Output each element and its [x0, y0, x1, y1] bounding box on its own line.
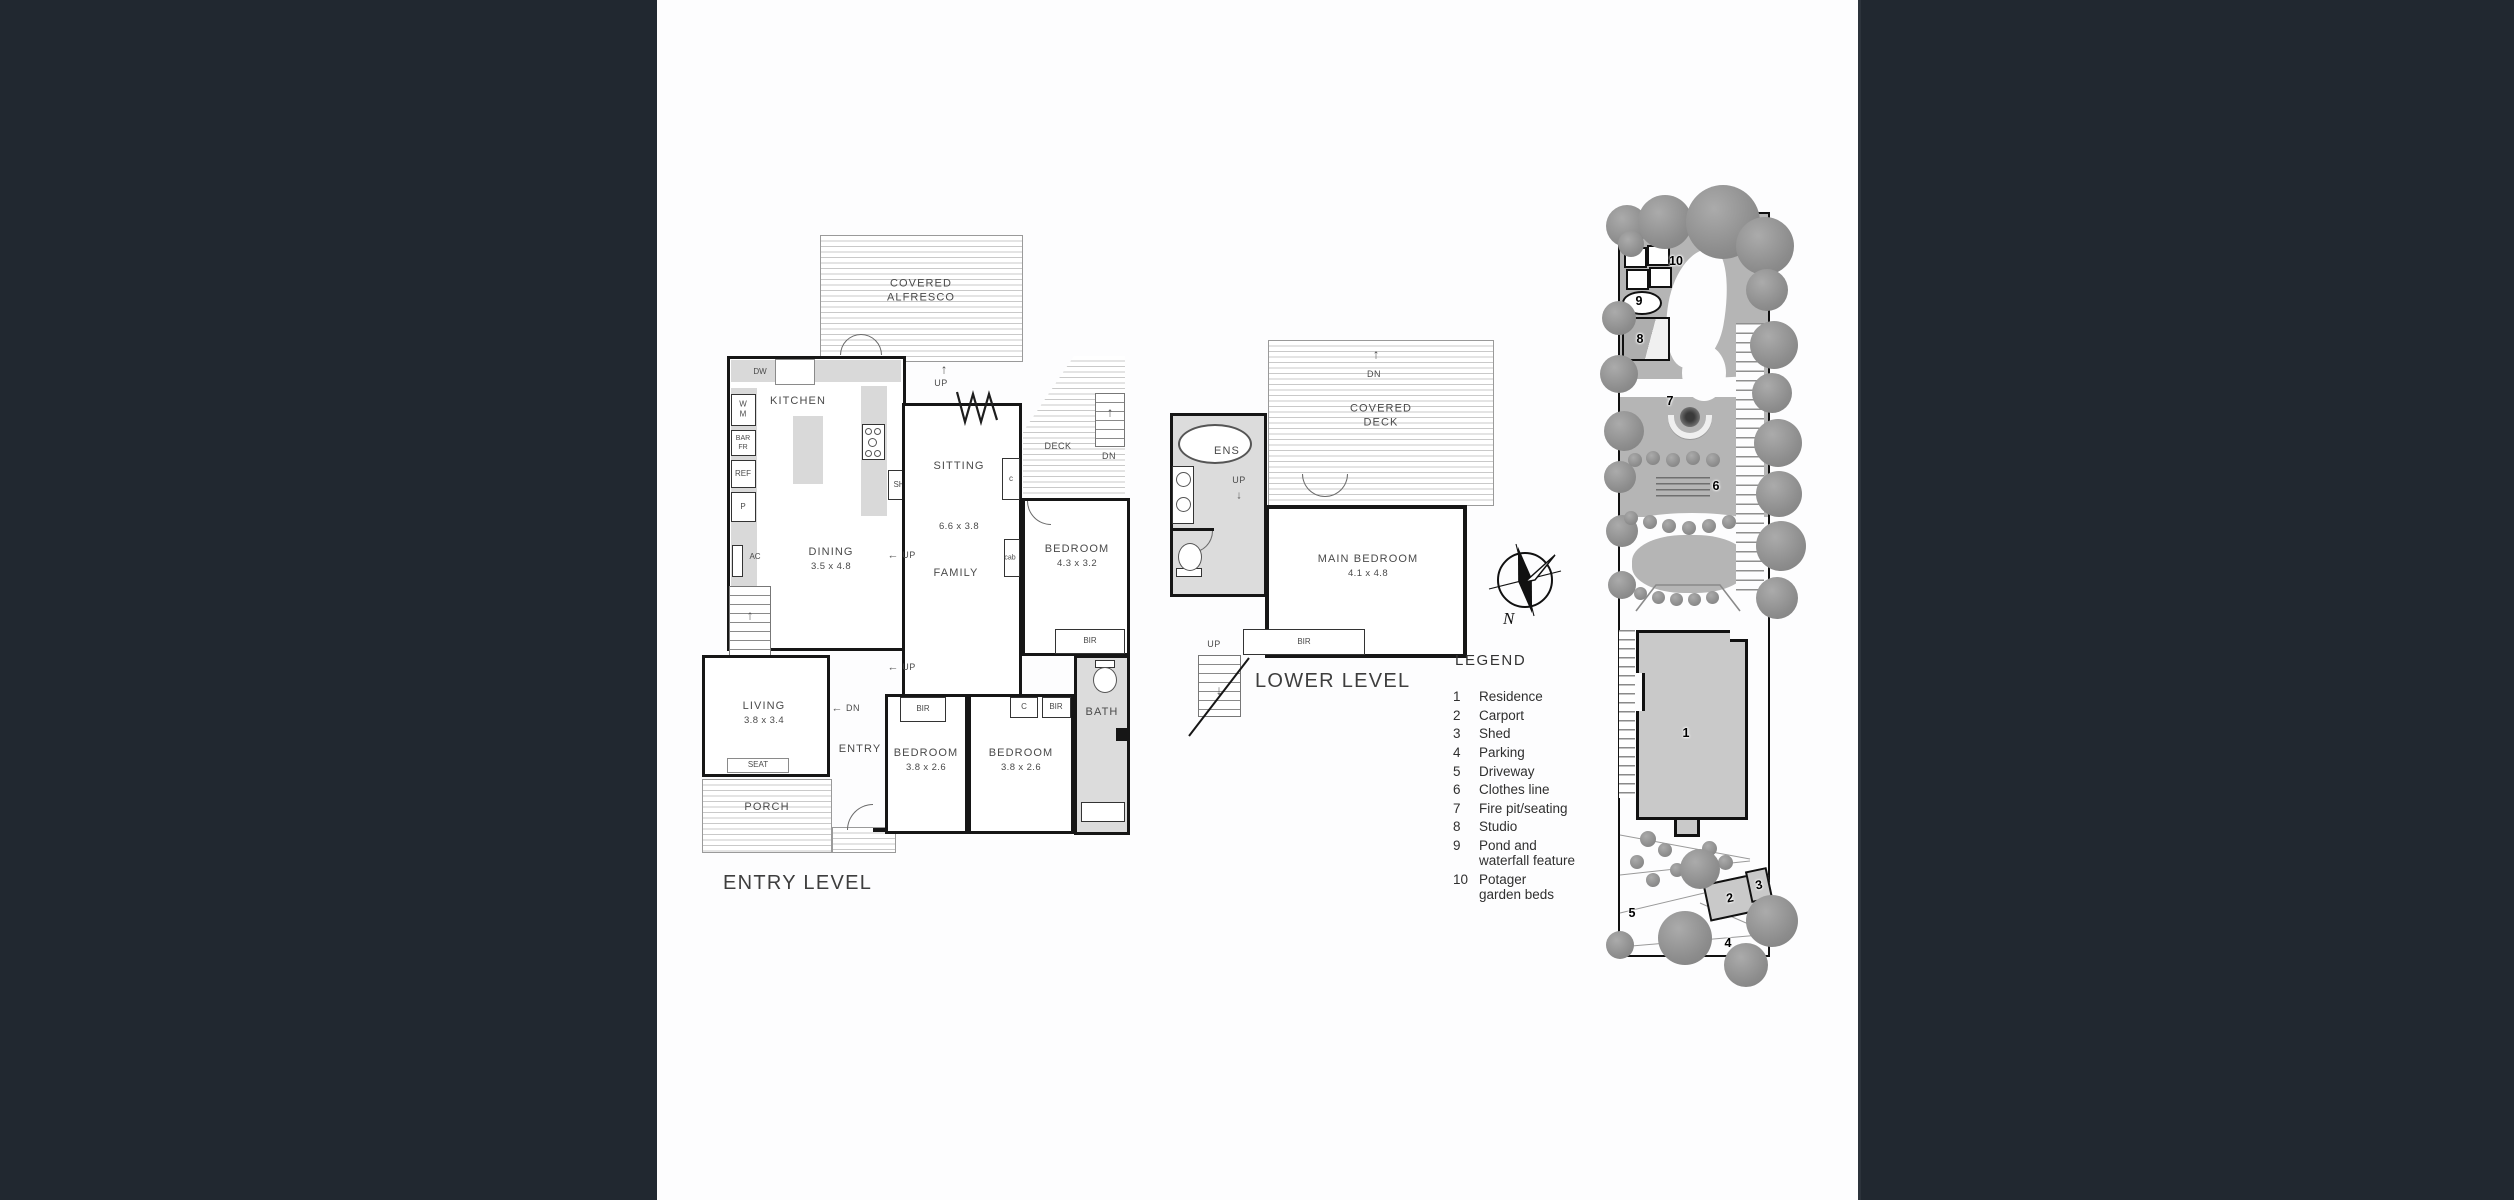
- residence-building: [1636, 630, 1748, 820]
- shrub-icon: [1634, 587, 1647, 600]
- shrub-icon: [1630, 855, 1644, 869]
- seat-label: SEAT: [748, 760, 768, 770]
- main-bedroom-label: MAIN BEDROOM: [1318, 552, 1419, 566]
- lower-up-label: UP: [1207, 639, 1221, 651]
- shrub-icon: [1643, 515, 1657, 529]
- toilet-icon: [1093, 667, 1117, 693]
- legend-num: 2: [1453, 708, 1479, 723]
- tree-icon: [1618, 231, 1644, 257]
- family-label: FAMILY: [934, 566, 979, 580]
- compass-icon: N: [1483, 538, 1567, 634]
- entry-level-title: ENTRY LEVEL: [723, 872, 872, 895]
- deck-dn-label: DN: [1367, 369, 1381, 381]
- front-door-arc: [847, 804, 873, 830]
- pantry-label: P: [740, 502, 745, 512]
- site-marker-2: 2: [1725, 890, 1735, 905]
- lower-level-title: LOWER LEVEL: [1255, 670, 1410, 693]
- bedroom-right-label: BEDROOM: [1045, 542, 1110, 556]
- deck-label: DECK: [1044, 441, 1071, 453]
- main-bedroom-dim: 4.1 x 4.8: [1348, 568, 1388, 580]
- bedroom-a-label: BEDROOM: [894, 746, 959, 760]
- shrub-icon: [1640, 831, 1656, 847]
- fireplace-zigzag-icon: [955, 390, 999, 424]
- legend-num: 4: [1453, 745, 1479, 760]
- kitchen-island: [793, 416, 823, 484]
- porch-label: PORCH: [744, 800, 789, 814]
- ac-label: AC: [749, 552, 760, 562]
- cabinet-label: cab: [1004, 553, 1015, 562]
- bir-label: BIR: [1297, 637, 1310, 647]
- floorplan-sheet: COVERED ALFRESCO ↑ UP DECK ↑ DN DW W M B…: [657, 0, 1861, 1200]
- washing-machine-label: W M: [739, 400, 747, 421]
- stove-burner-icon: [874, 450, 881, 457]
- tree-icon: [1658, 911, 1712, 965]
- bathtub: [1081, 802, 1125, 822]
- stove-burner-icon: [868, 438, 877, 447]
- up-arrow-icon: ↑: [1107, 406, 1114, 419]
- bedroom-a-dim: 3.8 x 2.6: [906, 762, 946, 774]
- shrub-icon: [1658, 843, 1672, 857]
- tree-icon: [1602, 301, 1636, 335]
- shrub-icon: [1706, 591, 1719, 604]
- site-marker-6: 6: [1713, 479, 1720, 493]
- shower-fitting: [1116, 728, 1128, 741]
- fire-pit: [1680, 407, 1700, 427]
- bar-fridge-label: BAR FR: [736, 434, 750, 452]
- compass-n-label: N: [1502, 609, 1516, 628]
- deck-stairs: [1095, 393, 1125, 447]
- tree-icon: [1746, 269, 1788, 311]
- up-arrow-icon: ↑: [1373, 348, 1380, 361]
- porch-deck: [702, 779, 832, 853]
- alfresco-up-label: UP: [934, 378, 948, 390]
- shrub-icon: [1646, 873, 1660, 887]
- dishwasher: [775, 359, 815, 385]
- shrub-icon: [1670, 593, 1683, 606]
- stair-diagonal-line: [1187, 654, 1251, 738]
- deck-dn-label: DN: [1102, 451, 1116, 463]
- covered-deck-label: COVERED DECK: [1350, 402, 1412, 431]
- closet-small-label: c: [1009, 474, 1013, 484]
- left-arrow-icon: ←: [888, 663, 899, 674]
- tree-icon: [1606, 931, 1634, 959]
- shrub-icon: [1702, 519, 1716, 533]
- legend-num: 5: [1453, 764, 1479, 779]
- residence-notch: [1730, 627, 1748, 642]
- up-arrow-icon: ↑: [941, 363, 948, 376]
- ensuite-label: ENS: [1214, 444, 1240, 458]
- up-arrow-icon: ↑: [747, 609, 754, 622]
- step-up-label: UP: [902, 662, 916, 674]
- garden-bed: [1626, 269, 1649, 290]
- vanity-basin-icon: [1176, 497, 1191, 512]
- tree-icon: [1746, 895, 1798, 947]
- shrub-icon: [1682, 521, 1696, 535]
- tree-icon: [1752, 373, 1792, 413]
- site-marker-5: 5: [1629, 906, 1636, 920]
- closet-label: C: [1021, 702, 1027, 712]
- left-arrow-icon: ←: [888, 551, 899, 562]
- legend-num: 8: [1453, 819, 1479, 834]
- stove-burner-icon: [865, 450, 872, 457]
- site-marker-1: 1: [1683, 726, 1690, 740]
- side-stairs: [1619, 630, 1635, 798]
- bir-label: BIR: [916, 704, 929, 714]
- shrub-icon: [1718, 855, 1733, 870]
- dishwasher-label: DW: [753, 367, 766, 377]
- shrub-icon: [1662, 519, 1676, 533]
- site-plan: 10 9 8 7 6 1 2: [1610, 205, 1785, 1005]
- shrub-icon: [1624, 511, 1638, 525]
- bedroom-b-label: BEDROOM: [989, 746, 1054, 760]
- stove-burner-icon: [865, 428, 872, 435]
- refrigerator-label: REF: [735, 469, 751, 479]
- tree-icon: [1600, 355, 1638, 393]
- legend-num: 6: [1453, 782, 1479, 797]
- ens-up-label: UP: [1232, 475, 1246, 487]
- shrub-icon: [1688, 593, 1701, 606]
- shrub-icon: [1666, 453, 1680, 467]
- site-marker-7: 7: [1667, 394, 1674, 408]
- stove-burner-icon: [874, 428, 881, 435]
- shrub-icon: [1722, 515, 1736, 529]
- legend-num: 10: [1453, 872, 1479, 903]
- vanity-basin-icon: [1176, 472, 1191, 487]
- ac-unit: [732, 545, 743, 577]
- living-dim: 3.8 x 3.4: [744, 715, 784, 727]
- bir-label: BIR: [1049, 702, 1062, 712]
- tree-icon: [1638, 195, 1692, 249]
- bedroom-right-dim: 4.3 x 3.2: [1057, 558, 1097, 570]
- tree-icon: [1736, 217, 1794, 275]
- legend-num: 1: [1453, 689, 1479, 704]
- shrub-icon: [1646, 451, 1660, 465]
- legend-num: 7: [1453, 801, 1479, 816]
- legend-num: 3: [1453, 726, 1479, 741]
- down-arrow-icon: ↓: [1236, 491, 1242, 502]
- site-marker-9: 9: [1636, 294, 1643, 308]
- bir-label: BIR: [1083, 636, 1096, 646]
- shrub-icon: [1706, 453, 1720, 467]
- site-marker-8: 8: [1637, 332, 1644, 346]
- sitting-dim: 6.6 x 3.8: [939, 521, 979, 533]
- bath-label: BATH: [1086, 705, 1119, 719]
- shrub-icon: [1628, 453, 1642, 467]
- living-label: LIVING: [743, 699, 786, 713]
- left-arrow-icon: ←: [832, 704, 843, 715]
- site-marker-4: 4: [1725, 936, 1732, 950]
- entry-label: ENTRY: [839, 742, 882, 756]
- tree-icon: [1756, 521, 1806, 571]
- tree-icon: [1604, 411, 1644, 451]
- sitting-label: SITTING: [933, 459, 984, 473]
- living-dn-label: DN: [846, 703, 860, 715]
- tree-icon: [1680, 849, 1720, 889]
- toilet-icon: [1178, 543, 1202, 571]
- covered-alfresco-label: COVERED ALFRESCO: [887, 277, 955, 306]
- tree-icon: [1608, 571, 1636, 599]
- legend-num: 9: [1453, 838, 1479, 869]
- tree-icon: [1754, 419, 1802, 467]
- bedroom-b-dim: 3.8 x 2.6: [1001, 762, 1041, 774]
- tree-icon: [1756, 577, 1798, 619]
- kitchen-label: KITCHEN: [770, 394, 826, 408]
- shrub-icon: [1686, 451, 1700, 465]
- site-marker-10: 10: [1669, 254, 1683, 268]
- dining-dim: 3.5 x 4.8: [811, 561, 851, 573]
- tree-icon: [1756, 471, 1802, 517]
- tree-icon: [1750, 321, 1798, 369]
- shrub-icon: [1652, 591, 1665, 604]
- dining-label: DINING: [808, 545, 853, 559]
- site-marker-3: 3: [1754, 877, 1764, 892]
- garden-bed: [1649, 267, 1672, 288]
- step-up-label: UP: [902, 550, 916, 562]
- clothes-line: [1656, 477, 1710, 501]
